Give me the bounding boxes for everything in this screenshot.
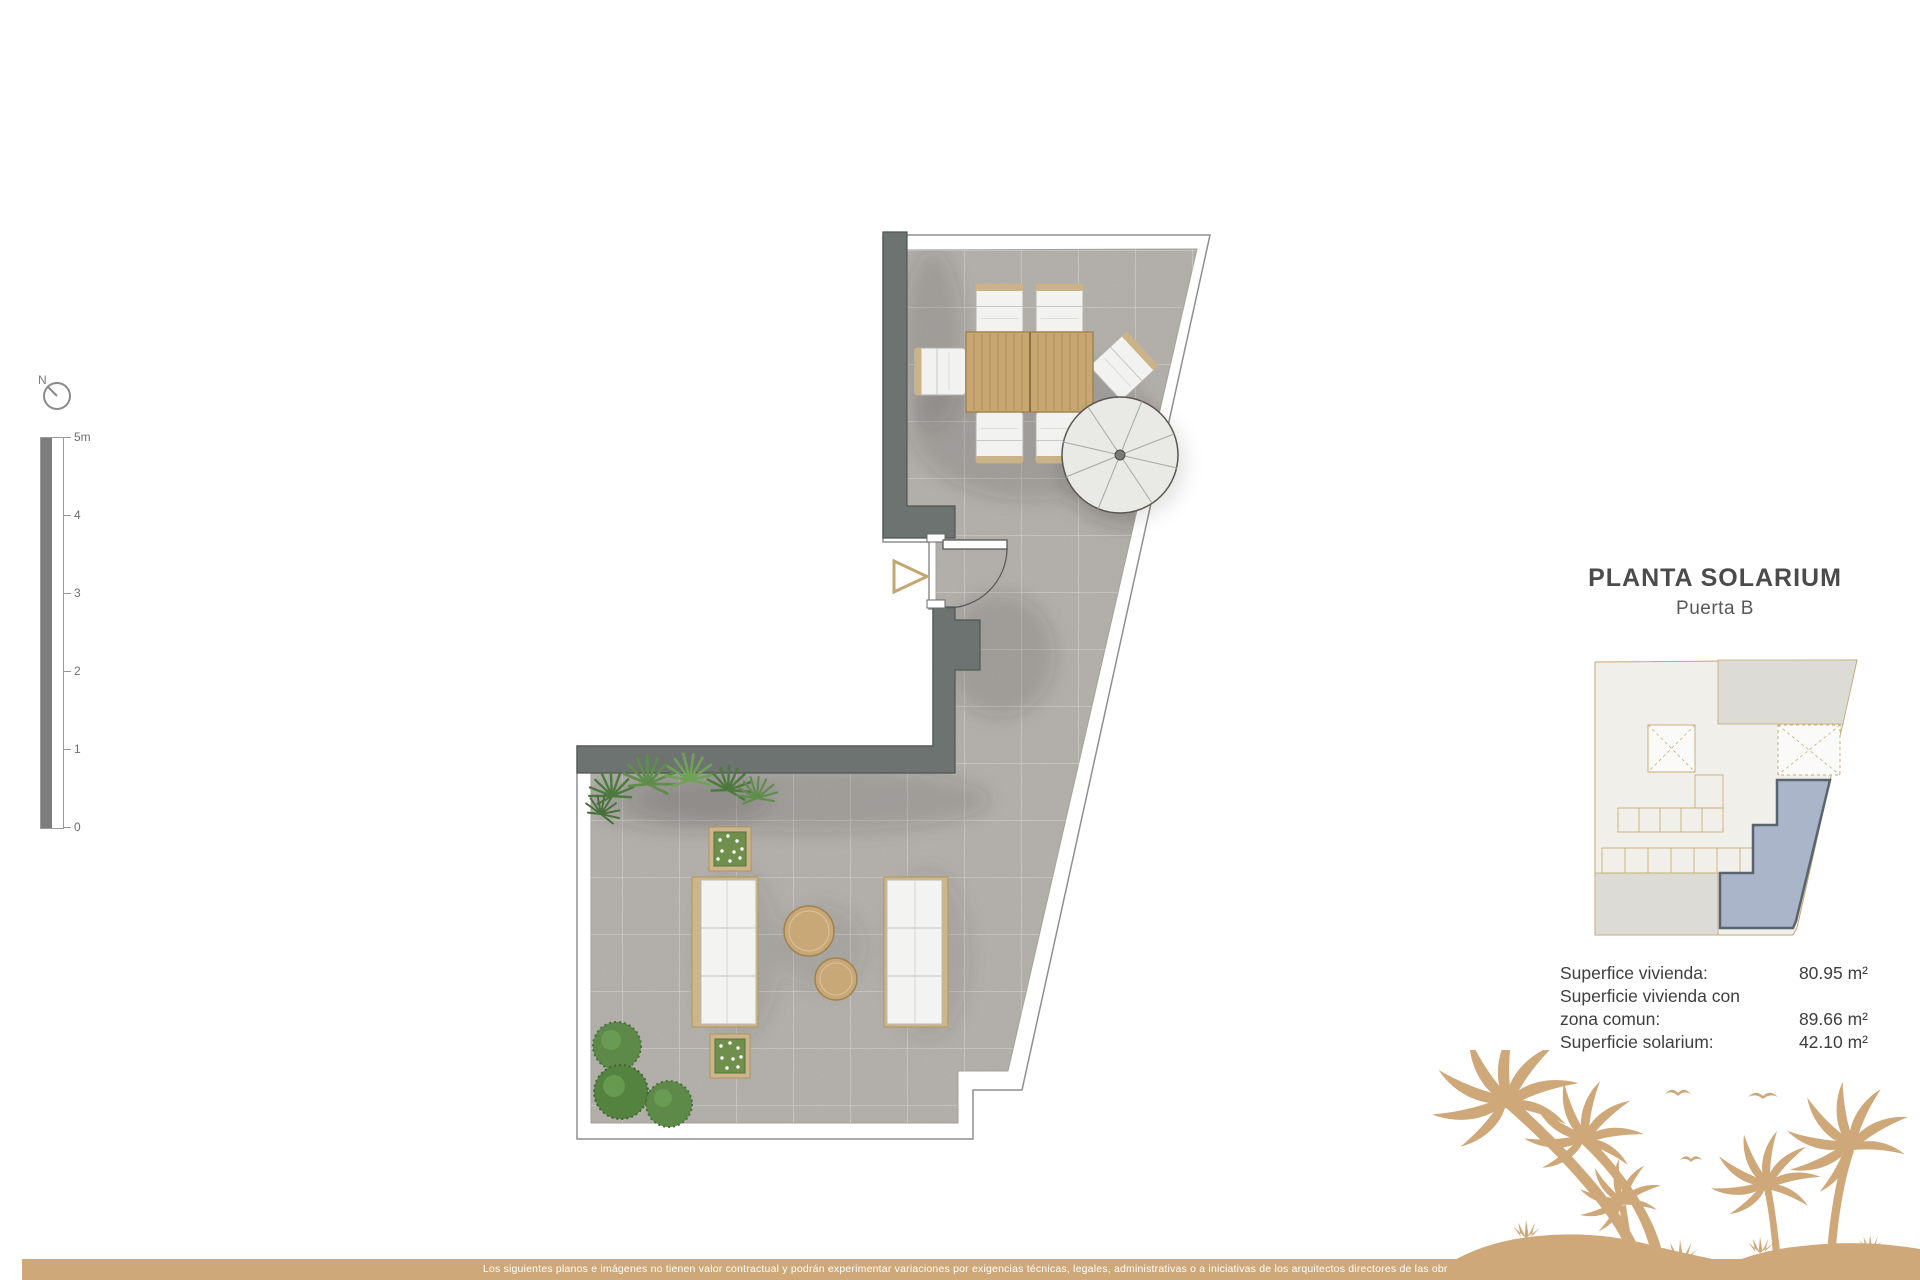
- keyplan-block-bottomleft: [1595, 873, 1718, 935]
- planter-bottom: [710, 1034, 750, 1078]
- entry-arrow-icon: [894, 561, 927, 592]
- key-plan: [1592, 650, 1864, 942]
- page-title: PLANTA SOLARIUM: [1562, 564, 1868, 593]
- door-leaf: [943, 540, 1007, 549]
- scale-tick-label: 1: [74, 742, 81, 756]
- dining-chair: [1036, 284, 1083, 335]
- coffee-table-small: [815, 958, 857, 1000]
- scale-bar-rule: [40, 437, 64, 829]
- door-hinge-top: [927, 534, 945, 542]
- dining-table: [966, 332, 1093, 412]
- bird-icon: [1748, 1093, 1778, 1099]
- area-label: Superfice vivienda:: [1560, 962, 1708, 985]
- coffee-table-large: [784, 906, 834, 956]
- palm-silhouettes: [1432, 1050, 1920, 1280]
- sofa-right: [884, 877, 948, 1027]
- area-label: zona comun:: [1560, 1008, 1660, 1031]
- dining-chair: [976, 412, 1023, 463]
- area-row: Superficie vivienda con: [1560, 985, 1868, 1008]
- dining-chair: [915, 348, 966, 395]
- keyplan-block-topright: [1718, 660, 1857, 724]
- area-row: zona comun: 89.66 m²: [1560, 1008, 1868, 1031]
- page-subtitle: Puerta B: [1562, 598, 1868, 620]
- scale-tick-label: 2: [74, 664, 81, 678]
- planter-top: [709, 827, 751, 871]
- sofa-left: [692, 877, 758, 1027]
- scale-bar: 5m 4 3 2 1 0: [40, 437, 130, 829]
- area-row: Superfice vivienda: 80.95 m²: [1560, 962, 1868, 985]
- area-label: Superficie vivienda con: [1560, 985, 1740, 1008]
- area-value: 89.66 m²: [1799, 1008, 1868, 1031]
- north-compass-icon: N: [30, 368, 80, 418]
- dining-chair: [976, 284, 1023, 335]
- compass-north-label: N: [38, 373, 47, 387]
- page: N 5m 4 3 2 1 0 PLANTA SOLARIUM Puerta B: [0, 0, 1920, 1280]
- palm-beach-decoration: [1430, 1050, 1920, 1280]
- door-hinge-bottom: [927, 600, 945, 608]
- area-value: 80.95 m²: [1799, 962, 1868, 985]
- scale-tick-label: 0: [74, 820, 81, 834]
- scale-tick-label: 4: [74, 508, 81, 522]
- bird-icon: [1665, 1090, 1691, 1096]
- scale-tick-label: 3: [74, 586, 81, 600]
- scale-tick-label: 5m: [74, 430, 91, 444]
- area-summary: Superfice vivienda: 80.95 m² Superficie …: [1560, 962, 1868, 1054]
- wall-lower: [577, 607, 980, 773]
- bird-icon: [1680, 1156, 1702, 1162]
